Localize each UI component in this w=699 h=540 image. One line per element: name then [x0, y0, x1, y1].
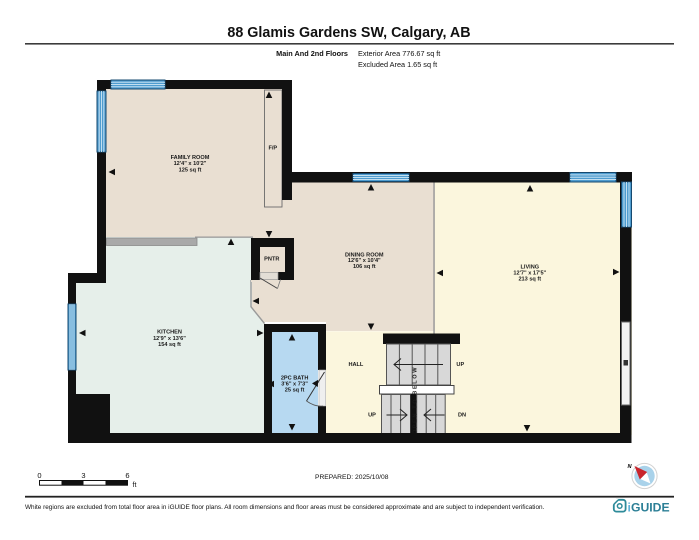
- svg-text:GUIDE: GUIDE: [631, 501, 670, 515]
- svg-text:UP: UP: [368, 413, 376, 419]
- svg-text:PNTR: PNTR: [264, 257, 279, 263]
- svg-text:ft: ft: [133, 482, 137, 489]
- svg-text:PREPARED: 2025/10/08: PREPARED: 2025/10/08: [315, 474, 389, 481]
- svg-text:White regions are excluded fro: White regions are excluded from total fl…: [25, 504, 545, 511]
- svg-text:DN: DN: [458, 413, 466, 419]
- svg-text:25 sq ft: 25 sq ft: [285, 387, 305, 393]
- svg-text:12'9" x 13'6": 12'9" x 13'6": [153, 336, 186, 342]
- svg-text:6: 6: [125, 471, 129, 480]
- svg-text:Excluded Area 1.65 sq ft: Excluded Area 1.65 sq ft: [358, 60, 437, 69]
- svg-text:154 sq ft: 154 sq ft: [158, 342, 181, 348]
- svg-text:F/P: F/P: [268, 146, 277, 152]
- svg-text:Exterior Area 776.67 sq ft: Exterior Area 776.67 sq ft: [358, 49, 440, 58]
- svg-text:Main And 2nd Floors: Main And 2nd Floors: [276, 49, 348, 58]
- svg-text:12'4" x 10'2": 12'4" x 10'2": [174, 161, 207, 167]
- svg-text:KITCHEN: KITCHEN: [157, 330, 182, 336]
- svg-text:88 Glamis Gardens SW, Calgary,: 88 Glamis Gardens SW, Calgary, AB: [227, 25, 470, 41]
- svg-text:125 sq ft: 125 sq ft: [179, 167, 202, 173]
- svg-text:FAMILY ROOM: FAMILY ROOM: [171, 155, 210, 161]
- svg-text:213 sq ft: 213 sq ft: [518, 277, 541, 283]
- svg-text:3: 3: [81, 471, 85, 480]
- svg-text:0: 0: [37, 471, 41, 480]
- svg-text:2PC BATH: 2PC BATH: [281, 375, 309, 381]
- svg-text:UP: UP: [456, 362, 464, 368]
- svg-text:HALL: HALL: [348, 362, 363, 368]
- svg-text:106 sq ft: 106 sq ft: [353, 264, 376, 270]
